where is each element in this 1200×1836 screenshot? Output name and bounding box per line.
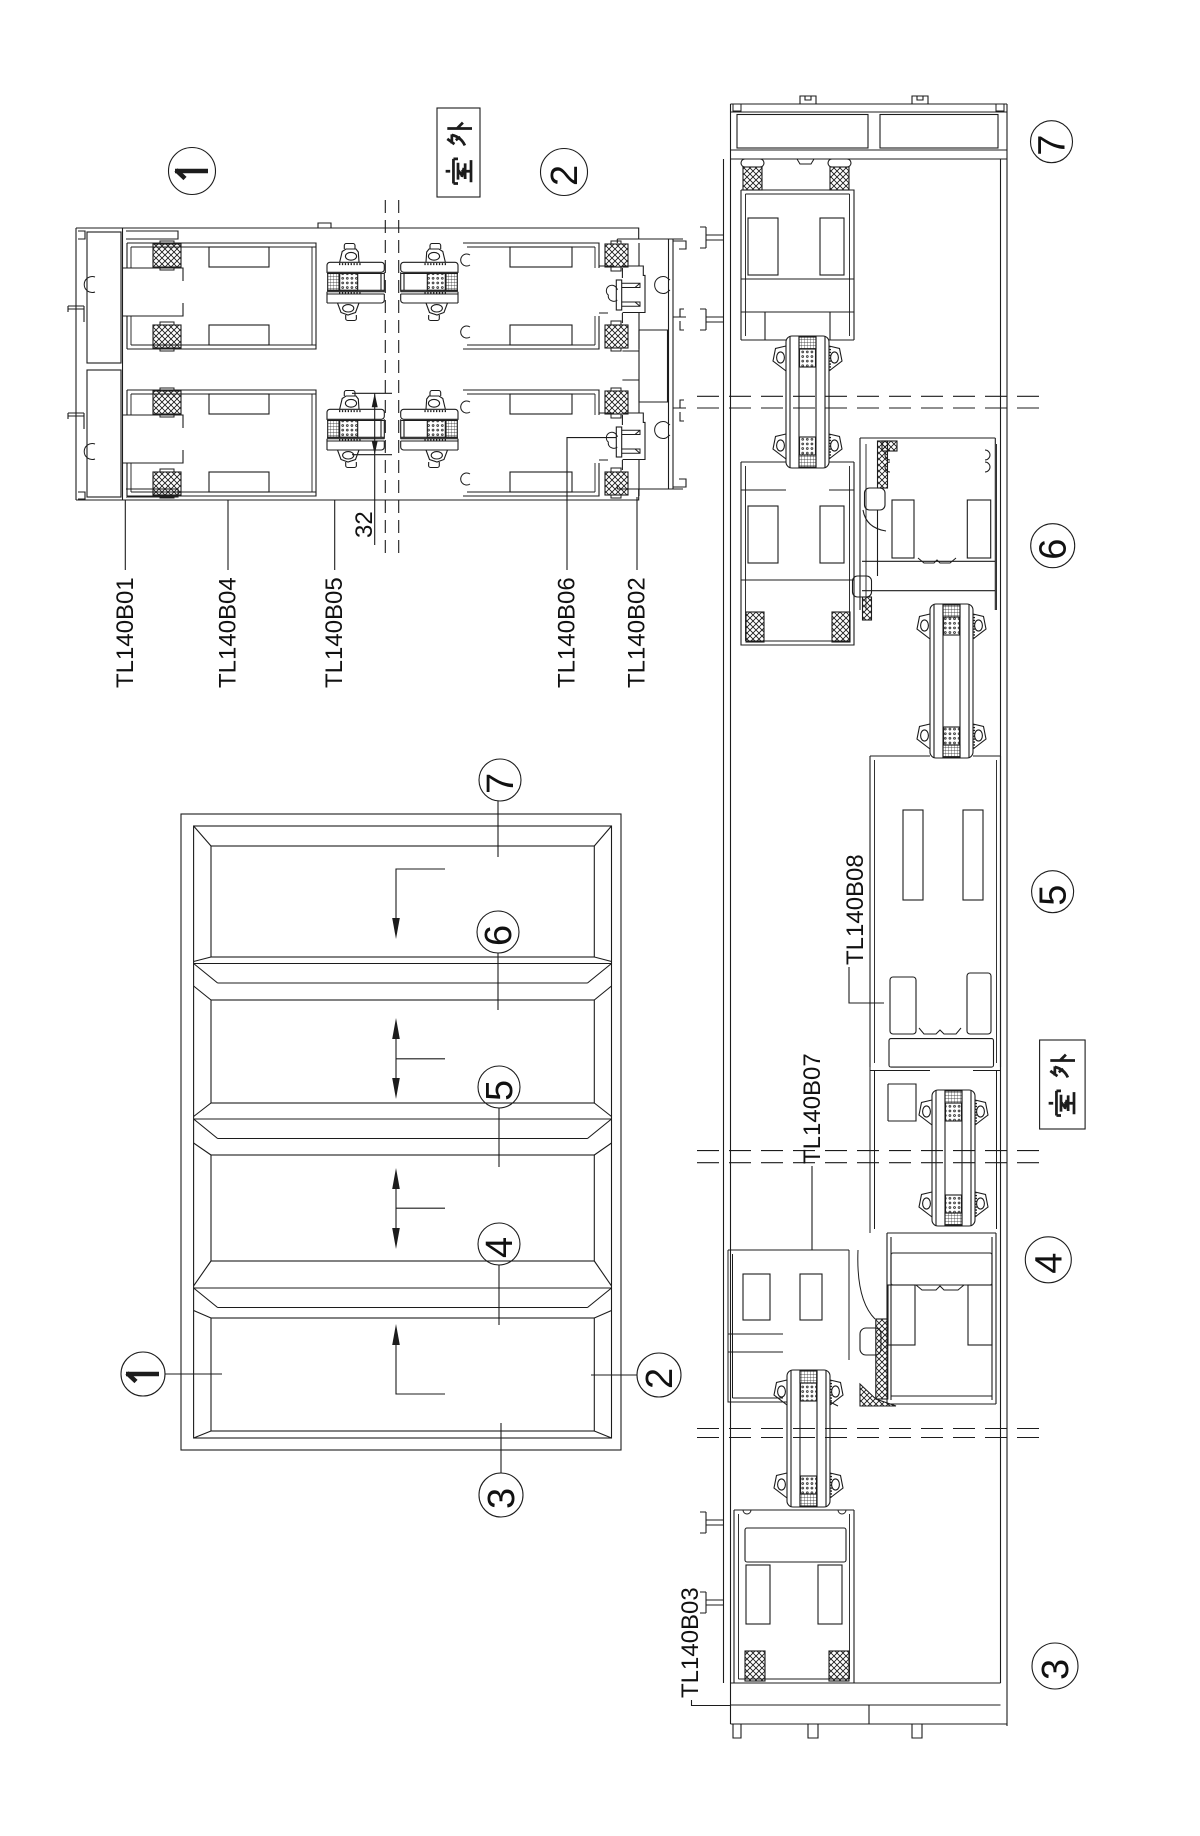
svg-text:5: 5 xyxy=(479,1080,521,1101)
svg-text:3: 3 xyxy=(481,1488,523,1509)
svg-text:32: 32 xyxy=(351,511,378,538)
svg-text:2: 2 xyxy=(639,1368,681,1389)
svg-text:7: 7 xyxy=(1032,135,1074,156)
svg-text:TL140B08: TL140B08 xyxy=(842,854,869,965)
svg-text:TL140B02: TL140B02 xyxy=(624,577,651,688)
svg-text:4: 4 xyxy=(1028,1253,1070,1274)
svg-text:7: 7 xyxy=(480,773,522,794)
svg-text:6: 6 xyxy=(1033,539,1075,560)
svg-text:6: 6 xyxy=(478,925,520,946)
svg-text:TL140B05: TL140B05 xyxy=(321,577,348,688)
svg-text:TL140B06: TL140B06 xyxy=(554,577,581,688)
svg-text:TL140B03: TL140B03 xyxy=(677,1587,704,1698)
svg-text:TL140B01: TL140B01 xyxy=(112,577,139,688)
svg-text:TL140B04: TL140B04 xyxy=(215,577,242,688)
svg-text:4: 4 xyxy=(479,1237,521,1258)
svg-text:5: 5 xyxy=(1033,885,1075,906)
svg-text:3: 3 xyxy=(1035,1659,1077,1680)
svg-text:TL140B07: TL140B07 xyxy=(799,1053,826,1164)
svg-text:2: 2 xyxy=(544,165,586,186)
